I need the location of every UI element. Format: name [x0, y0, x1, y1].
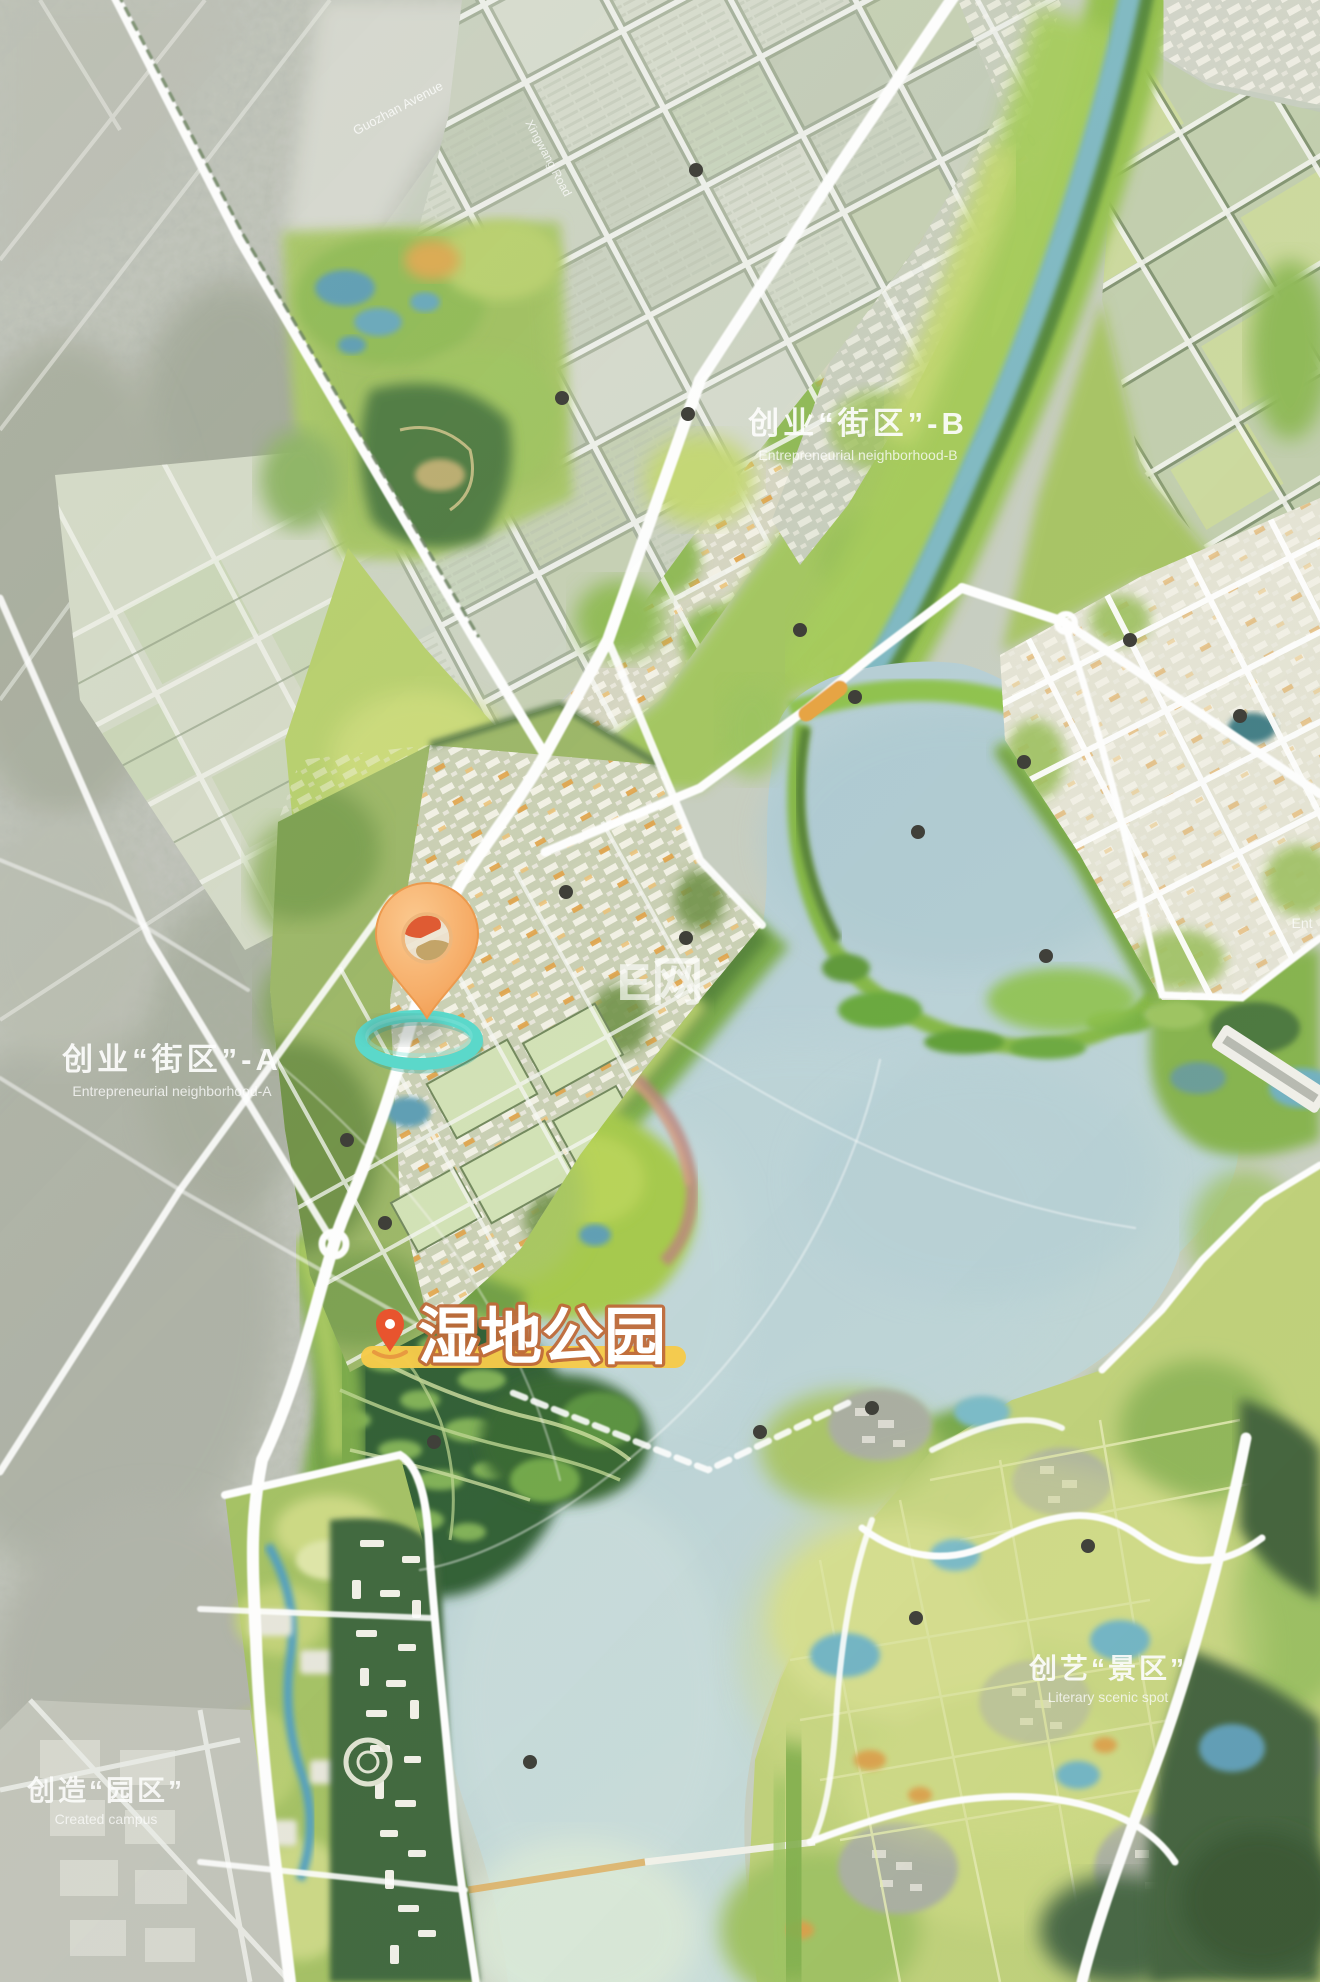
svg-text:湿地公园: 湿地公园: [418, 1303, 666, 1372]
